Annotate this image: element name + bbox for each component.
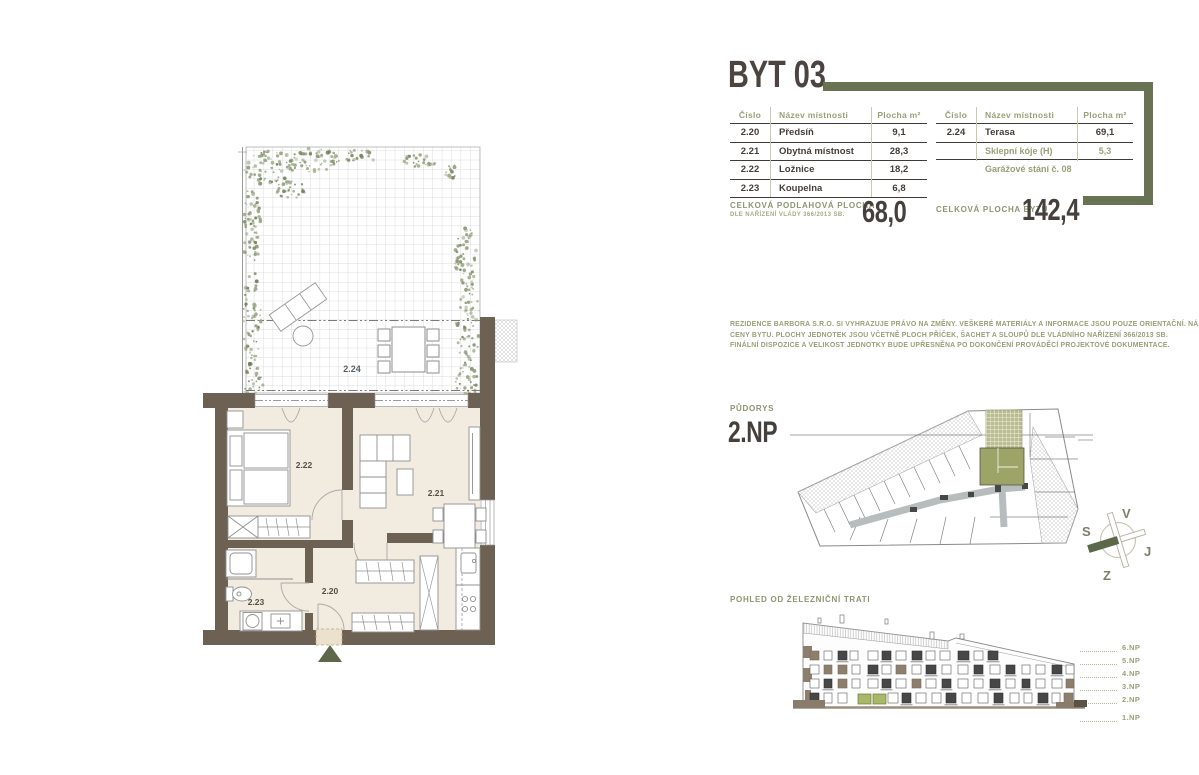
- total-floor-area-value: 68,0: [862, 194, 920, 230]
- ground-mass-left: [793, 700, 825, 708]
- entrance-arrow: [318, 645, 342, 662]
- room-label-bedroom: 2.22: [296, 460, 313, 470]
- compass-rose: V S J Z: [1078, 496, 1178, 588]
- garage-note: Garážové stání č. 08: [985, 164, 1072, 174]
- floor-leader: 1.NP: [1080, 714, 1140, 722]
- brochure-page: 2.24: [0, 0, 1199, 775]
- table-separator: [1077, 107, 1078, 161]
- floor-leader: 5.NP: [1080, 657, 1140, 665]
- col-name: Název místnosti: [770, 110, 871, 120]
- entrance-door: [316, 629, 342, 645]
- highlighted-terrace-grid: [986, 410, 1022, 448]
- total-floor-area-label: CELKOVÁ PODLAHOVÁ PLOCHA: [730, 201, 875, 210]
- compass-north: S: [1082, 524, 1091, 539]
- highlighted-unit-window: [873, 694, 886, 704]
- floor-leader: 4.NP: [1080, 670, 1140, 678]
- table-row: 2.24 Terasa 69,1: [936, 123, 1133, 142]
- terrace-dining-set: [378, 327, 439, 373]
- room-label-hall: 2.20: [322, 586, 339, 596]
- col-number: Číslo: [730, 110, 770, 120]
- corridor-stub: [1002, 489, 1004, 527]
- compass-east: V: [1122, 506, 1131, 521]
- highlighted-unit: [980, 448, 1024, 485]
- accent-bar-right: [1144, 82, 1153, 205]
- total-unit-area-value: 142,4: [1022, 192, 1097, 228]
- floor-plan-label: PŮDORYS: [730, 404, 774, 413]
- room-label-terrace: 2.24: [343, 364, 361, 374]
- accent-bar-top: [823, 82, 1153, 91]
- room-table: Číslo Název místnosti Plocha m² 2.20 Pře…: [730, 107, 927, 198]
- disclaimer-line: CENY BYTU. PLOCHY JEDNOTEK JSOU VČETNĚ P…: [730, 331, 1199, 342]
- unit-level-marker: [1074, 700, 1087, 707]
- compass-west: Z: [1103, 568, 1111, 583]
- table-row: 2.20 Předsíň 9,1: [730, 123, 927, 142]
- apartment-floor-plan: 2.24: [193, 128, 533, 677]
- elevation-label: POHLED OD ŽELEZNIČNÍ TRATI: [730, 595, 870, 604]
- floor-name: 2.NP: [728, 416, 793, 450]
- room-label-bathroom: 2.23: [248, 597, 265, 607]
- disclaimer-line: FINÁLNÍ DISPOZICE A VELIKOST JEDNOTKY BU…: [730, 341, 1199, 352]
- floor-leader: 6.NP: [1080, 644, 1140, 652]
- exterior-table-header: Číslo Název místnosti Plocha m²: [936, 107, 1133, 123]
- room-label-living: 2.21: [428, 488, 445, 498]
- table-row: 2.21 Obytná místnost 28,3: [730, 142, 927, 161]
- building-elevation: [790, 610, 1100, 755]
- table-separator: [976, 107, 977, 161]
- disclaimer-line: REZIDENCE BARBORA S.R.O. SI VYHRAZUJE PR…: [730, 320, 1199, 331]
- highlighted-unit-window: [858, 694, 871, 704]
- exterior-table: Číslo Název místnosti Plocha m² 2.24 Ter…: [936, 107, 1133, 160]
- disclaimer: REZIDENCE BARBORA S.R.O. SI VYHRAZUJE PR…: [730, 320, 1199, 352]
- storey-overview-plan: [790, 397, 1095, 562]
- total-floor-area-sublabel: DLE NAŘÍZENÍ VLÁDY 366/2013 SB.: [730, 212, 845, 218]
- floor-leader: 3.NP: [1080, 683, 1140, 691]
- table-row: Sklepní kóje (H) 5,3: [936, 142, 1133, 161]
- table-separator: [871, 107, 872, 197]
- room-table-header: Číslo Název místnosti Plocha m²: [730, 107, 927, 123]
- floor-leader: 2.NP: [1080, 696, 1140, 704]
- table-row: 2.22 Ložnice 18,2: [730, 160, 927, 179]
- table-separator: [770, 107, 771, 197]
- terrace-table-round: [293, 326, 313, 346]
- terrace-area: 2.24: [238, 147, 480, 421]
- col-area: Plocha m²: [871, 110, 927, 120]
- neighbour-structure: [495, 320, 517, 362]
- compass-south: J: [1144, 544, 1151, 559]
